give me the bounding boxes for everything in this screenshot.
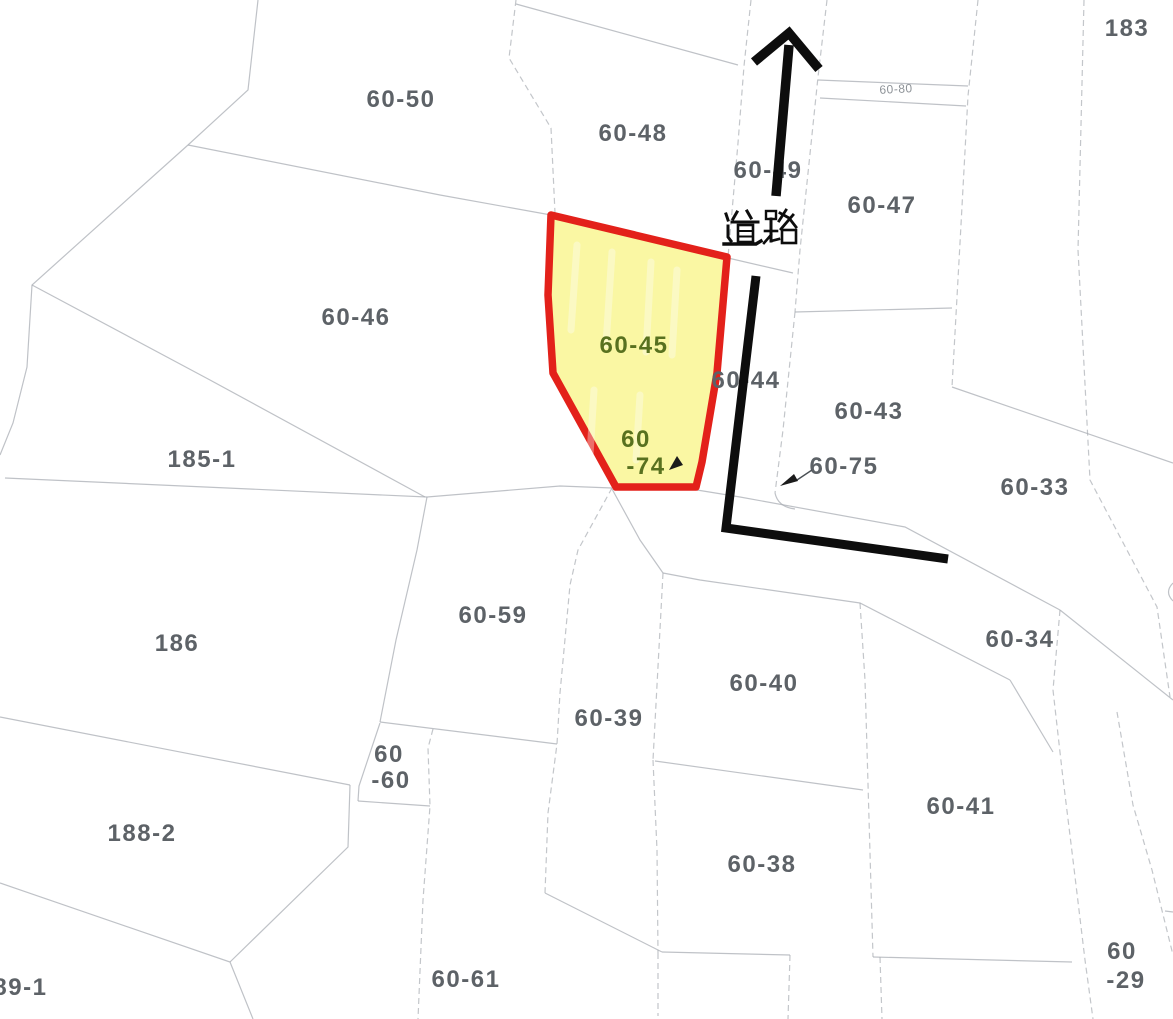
road-direction-arrow-icon — [754, 33, 819, 196]
parcel-boundary-linework — [0, 0, 1173, 1019]
parcel-label-189-1-28: 189-1 — [0, 976, 47, 1000]
parcel-label-60-38-24: 60-38 — [728, 853, 797, 877]
parcel-label-60-44-8: 60-44 — [712, 369, 781, 393]
parcel-label-60-20: 60 — [374, 743, 404, 767]
parcel-labels-layer: 18360-5060-4860-4960-8060-4760-4660-4560… — [0, 0, 1173, 1019]
parcel-label-60-61-25: 60-61 — [432, 968, 501, 992]
parcel-label-60-11: 60 — [621, 428, 651, 452]
parcel-label-60-46-6: 60-46 — [322, 306, 391, 330]
parcel-label-60-43-9: 60-43 — [835, 400, 904, 424]
parcel-label-188-2-22: 188-2 — [108, 822, 177, 846]
parcel-label--29-27: -29 — [1106, 969, 1145, 993]
parcel-label-60-47-5: 60-47 — [848, 194, 917, 218]
parcel-label-60-80-4: 60-80 — [879, 82, 913, 96]
parcel-label-60-26: 60 — [1107, 940, 1137, 964]
highlighted-parcel-60-45 — [548, 215, 727, 487]
parcel-boundary-lines — [0, 0, 1173, 1019]
parcel-label-60-41-23: 60-41 — [927, 795, 996, 819]
parcel-label-60-39-19: 60-39 — [575, 707, 644, 731]
cadastral-map-canvas: 18360-5060-4860-4960-8060-4760-4660-4560… — [0, 0, 1173, 1019]
parcel-label-60-45-7: 60-45 — [600, 334, 669, 358]
parcel-label-60-33-14: 60-33 — [1001, 476, 1070, 500]
road-label: 道路 — [731, 212, 797, 243]
parcel-label--60-21: -60 — [371, 769, 410, 793]
parcel-label-186-15: 186 — [155, 632, 200, 656]
pointer-arrow-60-74 — [669, 456, 683, 470]
parcel-label-183-0: 183 — [1105, 17, 1150, 41]
road-route-line — [726, 276, 948, 559]
highlighter-texture — [571, 245, 677, 460]
parcel-label-60-49-3: 60-49 — [734, 159, 803, 183]
parcel-label-60-48-2: 60-48 — [599, 122, 668, 146]
pointer-arrow-60-75 — [780, 470, 812, 486]
parcel-label--74-12: -74 — [626, 455, 665, 479]
parcel-label-60-59-16: 60-59 — [459, 604, 528, 628]
annotation-layer — [0, 0, 1173, 1019]
parcel-label-60-75-13: 60-75 — [810, 455, 879, 479]
parcel-label-185-1-10: 185-1 — [168, 448, 237, 472]
parcel-label-60-34-17: 60-34 — [986, 628, 1055, 652]
parcel-label-60-40-18: 60-40 — [730, 672, 799, 696]
parcel-label-60-50-1: 60-50 — [367, 88, 436, 112]
